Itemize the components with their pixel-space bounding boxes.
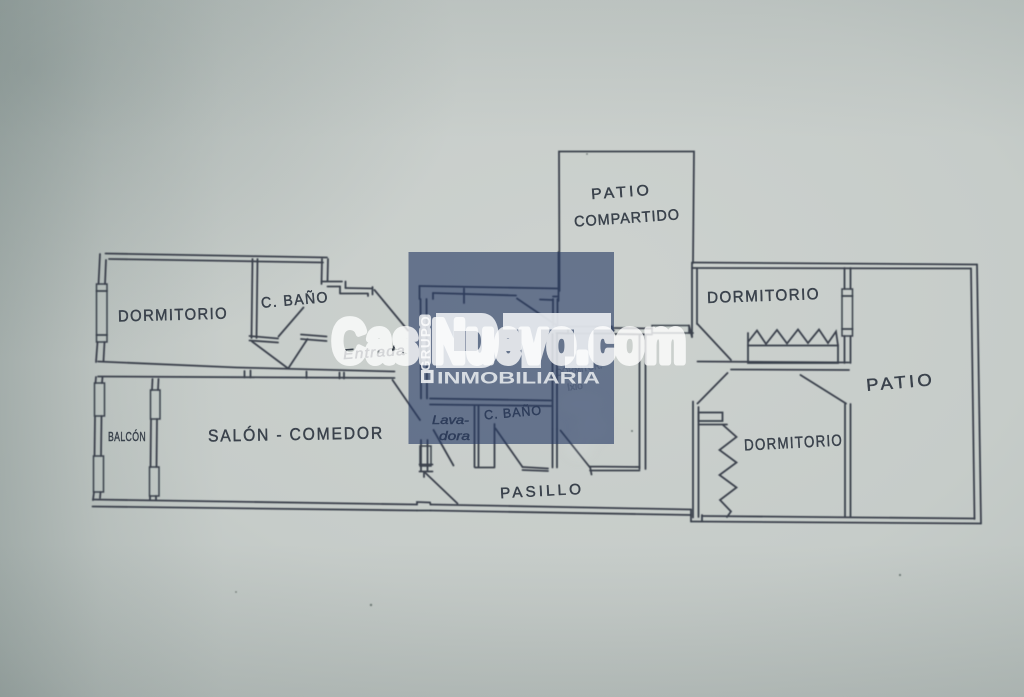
svg-text:CasiNuevo.com: CasiNuevo.com xyxy=(332,308,686,375)
svg-text:DORMITORIO: DORMITORIO xyxy=(118,306,228,326)
svg-text:BALCÓN: BALCÓN xyxy=(108,429,146,444)
svg-text:SALÓN - COMEDOR: SALÓN - COMEDOR xyxy=(208,423,384,445)
